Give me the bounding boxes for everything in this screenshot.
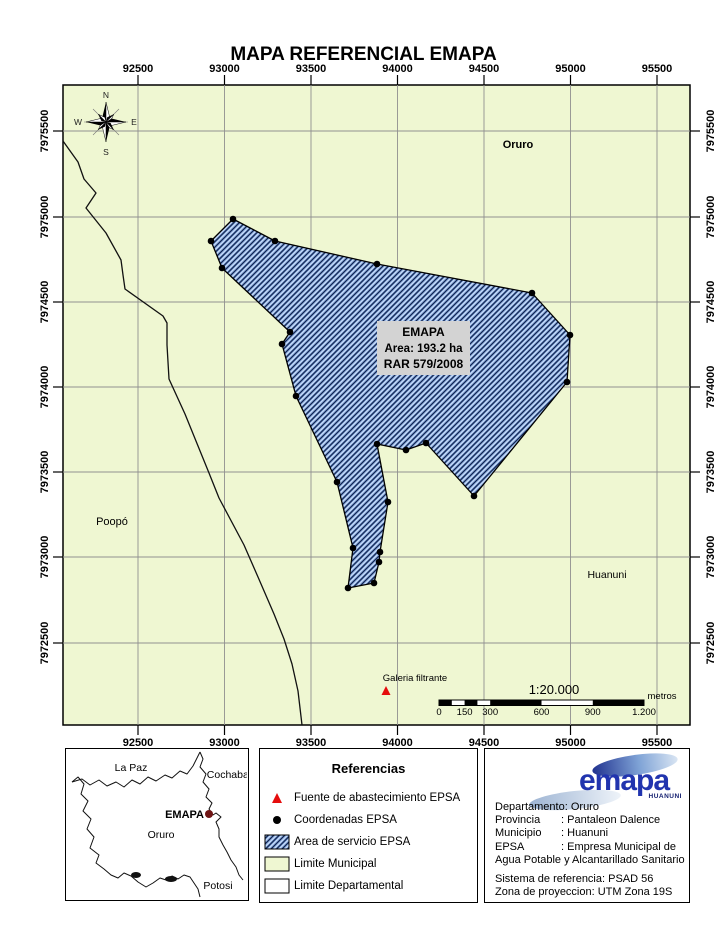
- logo-subtitle: HUANUNI: [649, 793, 682, 800]
- info-value: Huanuni: [567, 827, 608, 839]
- compass-s: S: [103, 147, 109, 157]
- legend-panel: Referencias Fuente de abastecimiento EPS…: [259, 748, 478, 903]
- x-axis-labels-top: 92500 93000 93500 94000 94500 95000 9550…: [123, 63, 673, 75]
- departmental-limit-swatch-icon: [260, 878, 294, 894]
- overview-label-emapa: EMAPA: [165, 809, 204, 821]
- y-tick-label: 7975000: [705, 196, 717, 239]
- overview-emapa-dot: [205, 810, 213, 818]
- scale-tick: 300: [482, 707, 498, 718]
- info-label: Municipio: [495, 827, 561, 840]
- legend-item-label: Coordenadas EPSA: [294, 814, 397, 826]
- overview-label-cochabamba: Cochabamba: [207, 769, 247, 781]
- info-row-municipio: Municipio: Huanuni: [495, 827, 685, 840]
- y-tick-label: 7973000: [705, 536, 717, 579]
- overview-map: La Paz Cochabamba EMAPA Oruro Potosi: [66, 749, 247, 899]
- info-panel: emapa HUANUNI Departamento: Oruro Provin…: [484, 748, 690, 903]
- x-tick-label: 92500: [123, 63, 154, 75]
- x-tick-label: 95000: [555, 63, 586, 75]
- info-colon: :: [561, 827, 564, 839]
- municipal-limit-swatch-icon: [260, 856, 294, 872]
- overview-label-potosi: Potosi: [203, 880, 232, 892]
- compass-w: W: [74, 117, 82, 127]
- info-text-block: Departamento: Oruro Provincia: Pantaleon…: [495, 801, 685, 867]
- area-label-name: EMAPA: [402, 325, 445, 339]
- y-tick-label: 7975500: [39, 110, 51, 153]
- area-info-label: EMAPA Area: 193.2 ha RAR 579/2008: [377, 321, 470, 375]
- info-reference-system: Sistema de referencia: PSAD 56: [495, 873, 685, 886]
- y-tick-label: 7973500: [39, 451, 51, 494]
- info-projection-zone: Zona de proyeccion: UTM Zona 19S: [495, 886, 685, 899]
- y-tick-label: 7973000: [39, 536, 51, 579]
- page: MAPA REFERENCIAL EMAPA: [0, 0, 727, 939]
- area-label-rar: RAR 579/2008: [384, 357, 464, 371]
- info-colon: :: [565, 801, 568, 813]
- x-tick-label: 93000: [209, 63, 240, 75]
- scale-unit-label: metros: [648, 691, 677, 702]
- info-value: Pantaleon Dalence: [567, 814, 660, 826]
- legend-item-label: Limite Municipal: [294, 858, 376, 870]
- legend-item-label: Fuente de abastecimiento EPSA: [294, 792, 460, 804]
- y-tick-label: 7972500: [705, 622, 717, 665]
- scale-tick: 900: [585, 707, 601, 718]
- coordinate-dot-icon: [260, 812, 294, 828]
- place-label-poopo: Poopó: [96, 516, 128, 528]
- info-epsa-continuation: Agua Potable y Alcantarillado Sanitario: [495, 854, 685, 867]
- compass-n: N: [103, 90, 109, 100]
- info-row-epsa: EPSA: Empresa Municipal de: [495, 841, 685, 854]
- legend-title: Referencias: [260, 761, 477, 776]
- info-label: Departamento: [495, 801, 565, 814]
- overview-label-la-paz: La Paz: [115, 762, 148, 774]
- overview-boundary-west: [72, 777, 131, 878]
- info-value: Empresa Municipal de: [567, 841, 676, 853]
- service-area-swatch-icon: [260, 834, 294, 850]
- place-label-oruro: Oruro: [503, 139, 534, 151]
- legend-item-fuente: Fuente de abastecimiento EPSA: [260, 789, 477, 806]
- x-tick-label: 93500: [296, 63, 327, 75]
- scale-ratio-label: 1:20.000: [529, 682, 580, 697]
- overview-lake: [131, 872, 141, 878]
- legend-list: Fuente de abastecimiento EPSA Coordenada…: [260, 789, 477, 894]
- info-row-provincia: Provincia: Pantaleon Dalence: [495, 814, 685, 827]
- water-source-triangle-icon: [260, 790, 294, 806]
- y-tick-label: 7972500: [39, 622, 51, 665]
- place-label-huanuni: Huanuni: [587, 569, 626, 581]
- y-tick-label: 7974000: [705, 366, 717, 409]
- y-tick-label: 7975000: [39, 196, 51, 239]
- x-tick-label: 94500: [469, 63, 500, 75]
- main-map: 92500 93000 93500 94000 94500 95000 9550…: [0, 0, 727, 757]
- scale-tick: 600: [534, 707, 550, 718]
- legend-item-limite-departamental: Limite Departamental: [260, 877, 477, 894]
- x-tick-label: 94000: [382, 63, 413, 75]
- legend-item-label: Area de servicio EPSA: [294, 836, 410, 848]
- info-reference-block: Sistema de referencia: PSAD 56 Zona de p…: [495, 873, 685, 899]
- scale-tick: 0: [436, 707, 441, 718]
- compass-e: E: [131, 117, 137, 127]
- legend-item-limite-municipal: Limite Municipal: [260, 855, 477, 872]
- info-row-departamento: Departamento: Oruro: [495, 801, 685, 814]
- legend-item-label: Limite Departamental: [294, 880, 403, 892]
- y-tick-label: 7974500: [705, 281, 717, 324]
- y-tick-label: 7974000: [39, 366, 51, 409]
- scale-tick: 150: [457, 707, 473, 718]
- info-colon: :: [561, 814, 564, 826]
- area-label-area: Area: 193.2 ha: [385, 343, 464, 355]
- galeria-filtrante-label: Galeria filtrante: [383, 673, 447, 684]
- overview-map-panel: La Paz Cochabamba EMAPA Oruro Potosi: [65, 748, 249, 901]
- y-tick-label: 7973500: [705, 451, 717, 494]
- info-label: EPSA: [495, 841, 561, 854]
- scale-tick: 1.200: [632, 707, 656, 718]
- legend-item-coordenadas: Coordenadas EPSA: [260, 811, 477, 828]
- info-label: Provincia: [495, 814, 561, 827]
- overview-label-oruro: Oruro: [148, 829, 175, 841]
- y-tick-label: 7974500: [39, 281, 51, 324]
- info-value: Oruro: [571, 801, 599, 813]
- y-axis-labels-left: 7975500 7975000 7974500 7974000 7973500 …: [39, 110, 51, 665]
- y-axis-labels-right: 7975500 7975000 7974500 7974000 7973500 …: [705, 110, 717, 665]
- info-colon: :: [561, 841, 564, 853]
- x-tick-label: 95500: [642, 63, 673, 75]
- legend-item-area-servicio: Area de servicio EPSA: [260, 833, 477, 850]
- y-tick-label: 7975500: [705, 110, 717, 153]
- overview-lake: [165, 876, 177, 882]
